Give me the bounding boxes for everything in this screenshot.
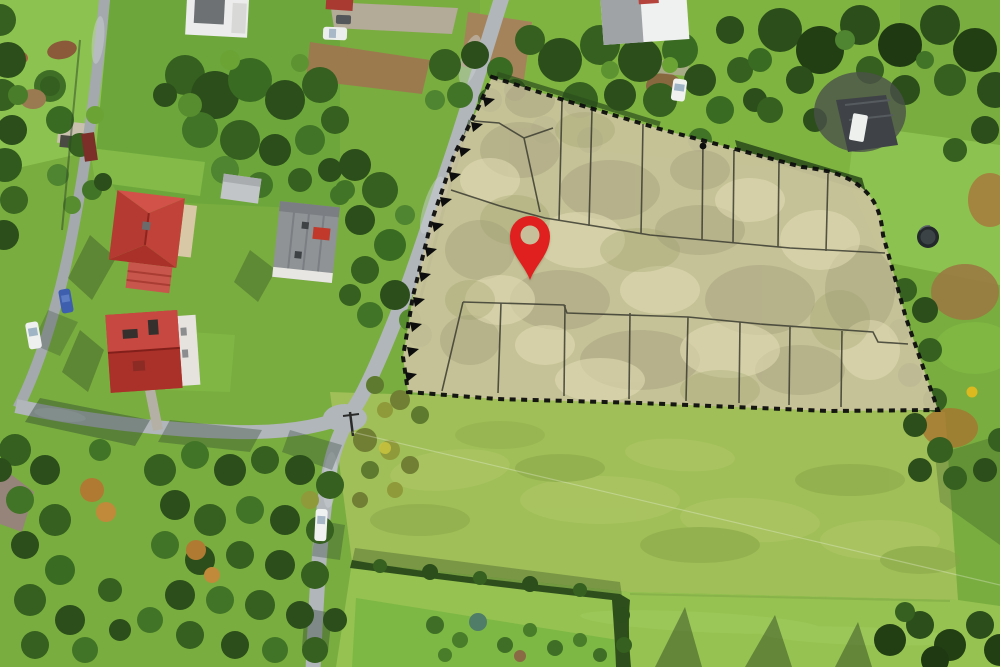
- building-white-top-center: [185, 0, 249, 38]
- white-car: [314, 509, 328, 542]
- dry-brush: [931, 264, 999, 320]
- roof-window: [148, 319, 159, 335]
- aerial-photo-canvas: [0, 0, 1000, 667]
- roof-sign: [312, 227, 330, 241]
- trampoline: [917, 226, 939, 248]
- shed-gray: [220, 174, 261, 204]
- house-gray-roof: [272, 201, 340, 283]
- dark-car: [336, 15, 351, 25]
- chimney: [142, 221, 151, 230]
- building-white-top-right: [600, 0, 689, 45]
- chimney: [294, 251, 302, 259]
- roof-window: [133, 360, 146, 371]
- aerial-photo: [0, 0, 1000, 667]
- chimney: [301, 222, 309, 230]
- road-junction: [323, 404, 367, 432]
- yellow-bucket: [967, 387, 978, 398]
- roof-window: [122, 329, 138, 339]
- house-red-roof-south: [105, 309, 200, 393]
- building-red-sliver-top: [326, 0, 354, 11]
- house-annex-roof: [126, 262, 173, 293]
- white-car: [323, 27, 347, 41]
- survey-point-dot: [700, 143, 707, 150]
